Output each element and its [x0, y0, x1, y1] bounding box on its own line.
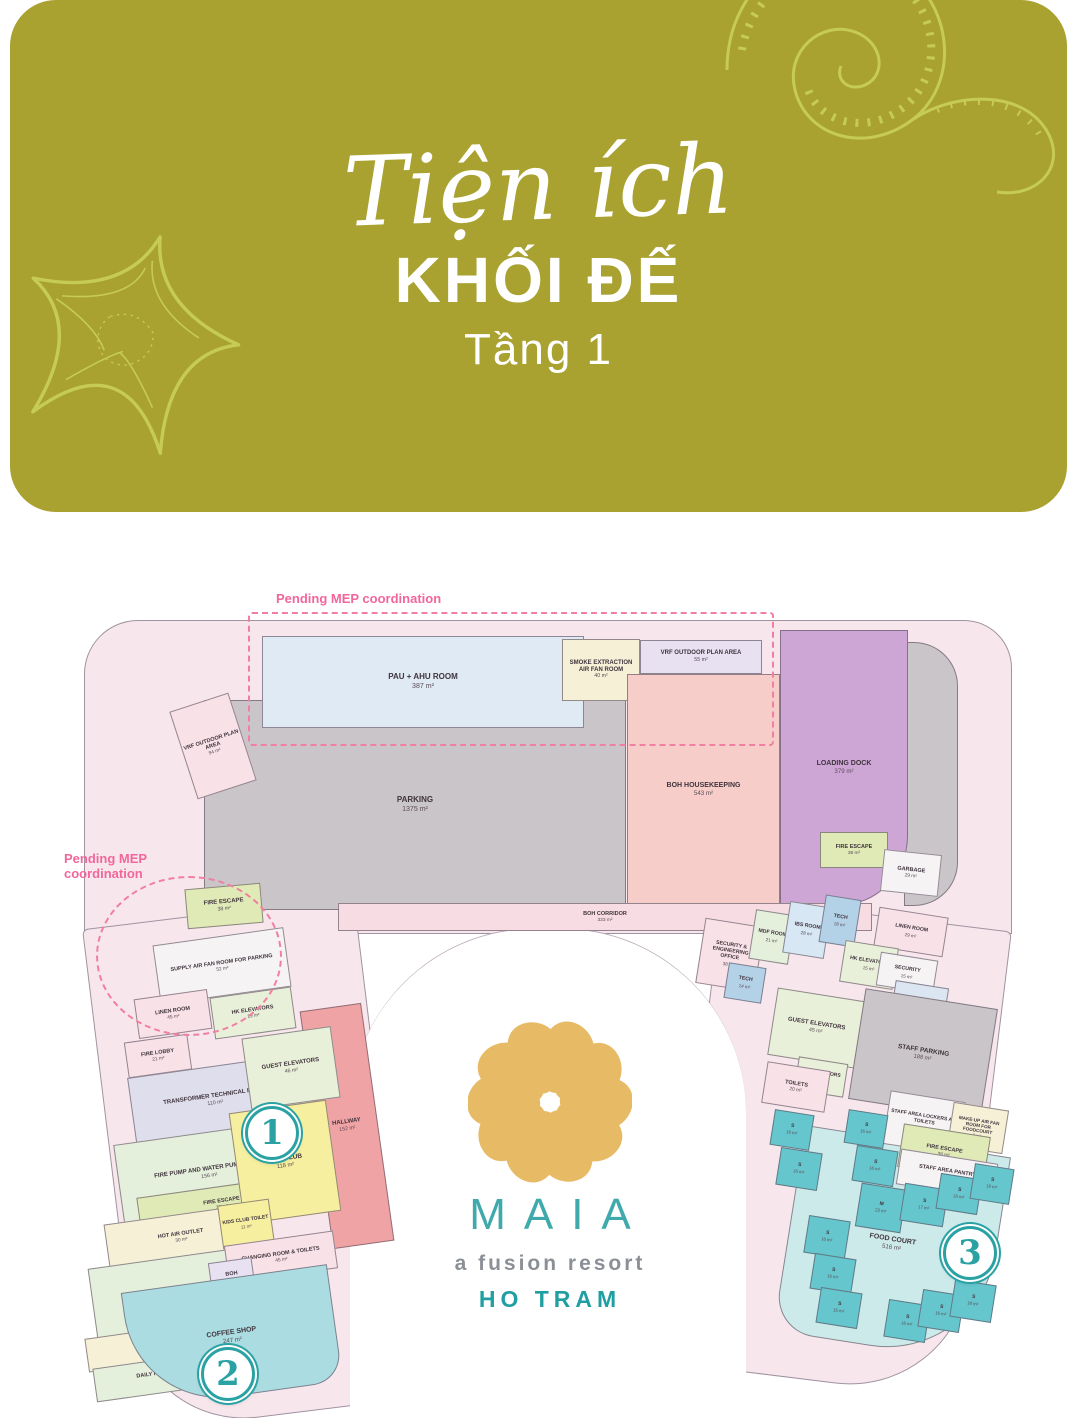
room-s: S18 m² [949, 1279, 996, 1323]
marker-1: 1 [245, 1106, 299, 1160]
room-area: 29 m² [904, 932, 916, 939]
room-area: 16 m² [860, 1129, 872, 1136]
room-label: LOADING DOCK [817, 760, 872, 768]
room-area: 23 m² [875, 1208, 887, 1215]
room-m: M23 m² [855, 1183, 907, 1234]
room-area: 16 m² [827, 1274, 839, 1281]
room-area: 46 m² [284, 1068, 298, 1076]
room-area: 18 m² [967, 1301, 979, 1308]
room-fire-escape: FIRE ESCAPE38 m² [820, 832, 888, 868]
pending-mep-note: Pending MEP coordination [64, 852, 147, 882]
room-area: 379 m² [834, 769, 853, 776]
room-s: S16 m² [803, 1215, 850, 1259]
room-area: 38 m² [848, 851, 860, 856]
brochure-page: Tiện ích KHỐI ĐẾ Tầng 1 PARKING1375 m²PA… [0, 0, 1077, 1418]
room-label: PARKING [397, 796, 433, 805]
room-area: 110 m² [207, 1100, 224, 1108]
room-area: 16 m² [901, 1321, 913, 1328]
room-label: BOH CORRIDOR [583, 911, 627, 917]
pending-mep-note: Pending MEP coordination [276, 592, 441, 607]
room-area: 15 m² [833, 1308, 845, 1315]
room-area: 45 m² [808, 1028, 822, 1036]
room-area: 247 m² [223, 1337, 243, 1346]
room-area: 16 m² [935, 1311, 947, 1318]
room-area: 516 m² [881, 1243, 901, 1253]
room-area: 29 m² [904, 873, 917, 880]
marker-3: 3 [943, 1226, 997, 1280]
room-area: 118 m² [277, 1162, 295, 1171]
room-s: S15 m² [815, 1287, 862, 1329]
room-area: 21 m² [765, 937, 777, 944]
room-area: 333 m² [597, 918, 612, 923]
room-area: 18 m² [833, 921, 845, 928]
room-area: 156 m² [201, 1173, 218, 1181]
room-area: 28 m² [800, 930, 812, 937]
room-area: 19 m² [986, 1184, 998, 1191]
room-label: BOH HOUSEKEEPING [667, 782, 741, 790]
logo-tagline: a fusion resort [420, 1252, 680, 1276]
room-tech: TECH18 m² [818, 894, 861, 947]
room-area: 14 m² [738, 983, 750, 990]
room-guest-elevators: GUEST ELEVATORS46 m² [241, 1026, 340, 1110]
pending-mep-boundary-rect [248, 612, 774, 746]
room-area: 16 m² [793, 1169, 805, 1176]
room-area: 17 m² [918, 1205, 930, 1212]
logo-location: HO TRAM [420, 1286, 680, 1313]
room-guest-elevators: GUEST ELEVATORS45 m² [767, 988, 865, 1069]
room-tech: TECH14 m² [723, 962, 766, 1004]
room-area: 1375 m² [402, 806, 428, 814]
room-s: S19 m² [969, 1163, 1014, 1205]
logo-name: MAIA [420, 1190, 680, 1240]
pending-mep-boundary-circle [96, 876, 282, 1036]
room-area: 30 m² [175, 1237, 188, 1244]
room-s: S16 m² [775, 1147, 822, 1191]
room-s: S16 m² [851, 1145, 898, 1187]
room-s: S16 m² [844, 1109, 889, 1149]
room-label: FIRE ESCAPE [836, 844, 873, 850]
room-area: 188 m² [913, 1054, 932, 1063]
marker-2: 2 [201, 1347, 255, 1401]
room-area: 16 m² [786, 1130, 798, 1137]
room-area: 152 m² [339, 1126, 356, 1134]
room-area: 15 m² [900, 973, 912, 980]
room-area: 45 m² [275, 1257, 288, 1264]
room-area: 16 m² [821, 1237, 833, 1244]
room-area: 11 m² [241, 1224, 252, 1230]
room-area: 16 m² [869, 1166, 881, 1173]
maia-logo: MAIA a fusion resort HO TRAM [420, 1020, 680, 1313]
room-garbage: GARBAGE29 m² [880, 849, 942, 897]
room-area: 15 m² [862, 965, 874, 972]
room-s: S16 m² [769, 1109, 814, 1151]
room-area: 20 m² [789, 1087, 802, 1094]
room-area: 543 m² [694, 791, 713, 798]
maia-flower-icon [468, 1020, 632, 1184]
room-area: 21 m² [152, 1056, 165, 1063]
room-area: 16 m² [953, 1194, 965, 1201]
